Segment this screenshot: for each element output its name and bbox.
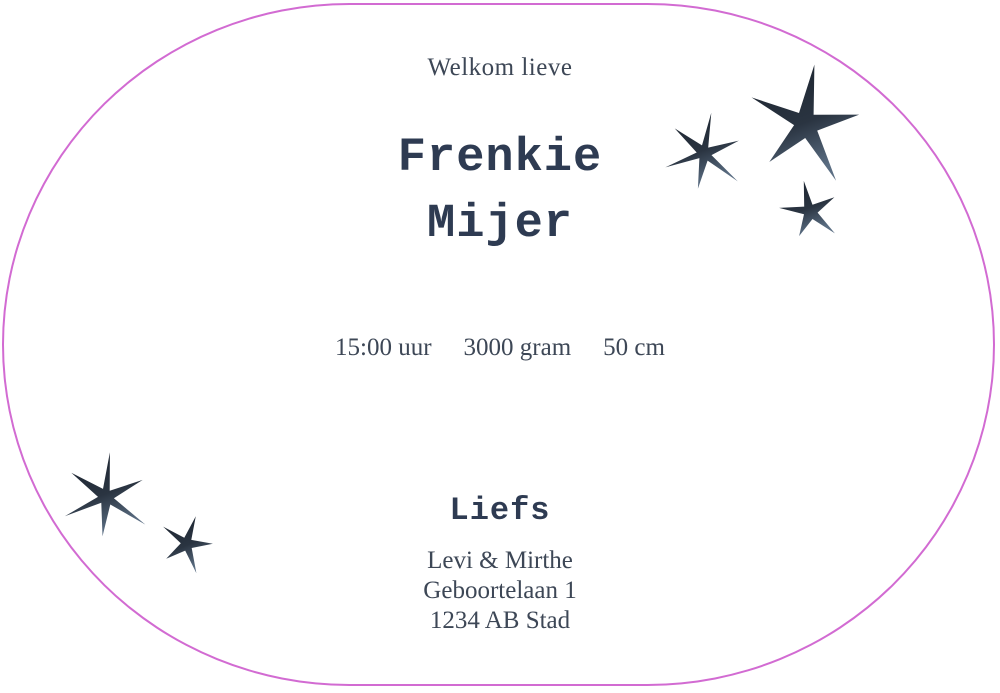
birth-weight: 3000 gram: [464, 334, 572, 362]
birth-stats: 15:00 uur 3000 gram 50 cm: [0, 334, 1000, 362]
star-bottom-left-large: [52, 443, 160, 551]
star-bottom-left-small: [152, 509, 222, 579]
birth-announcement-card: Welkom lieve Frenkie Mijer 15:00 uur 300…: [0, 0, 1000, 693]
postal-city: 1234 AB Stad: [0, 606, 1000, 636]
address-block: Levi & Mirthe Geboortelaan 1 1234 AB Sta…: [0, 546, 1000, 636]
birth-time: 15:00 uur: [335, 334, 432, 362]
star-top-right-small: [773, 174, 847, 248]
birth-length: 50 cm: [603, 334, 665, 362]
baby-last-name: Mijer: [0, 192, 1000, 258]
street-address: Geboortelaan 1: [0, 576, 1000, 606]
